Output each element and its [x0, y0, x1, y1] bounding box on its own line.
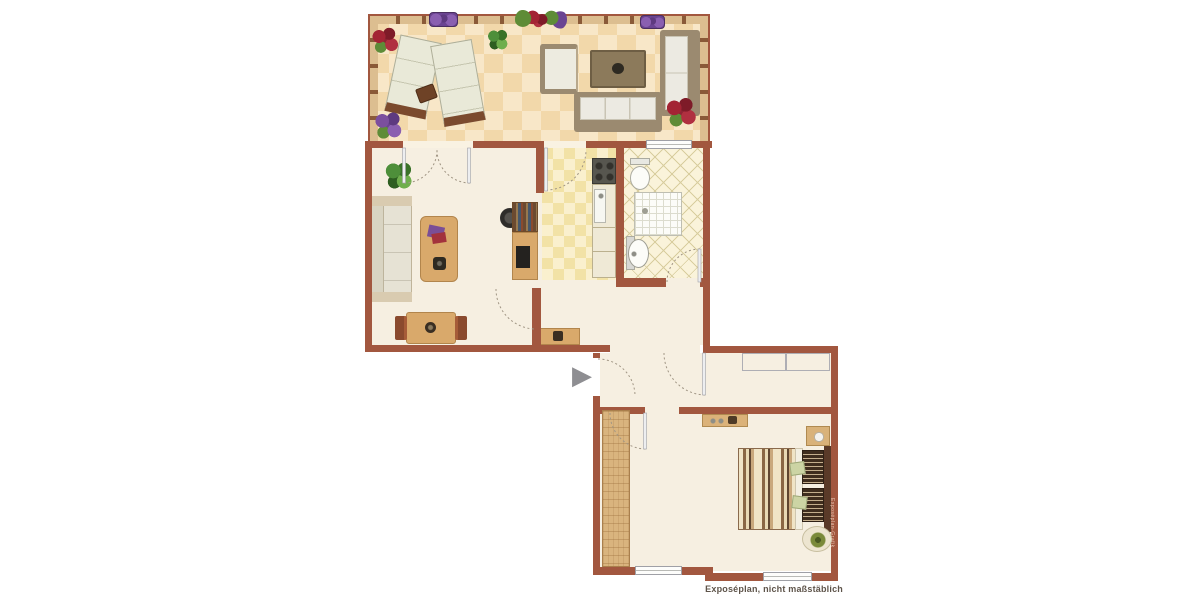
wall	[365, 141, 372, 352]
balcony-door-opening-living	[403, 141, 473, 148]
plant-living-room	[383, 160, 415, 192]
bathroom-door-opening	[666, 278, 700, 287]
entrance-door-opening	[593, 358, 600, 396]
wall	[703, 141, 710, 353]
terrace-table-bowl	[612, 63, 624, 74]
planter-rail-left	[429, 12, 458, 27]
wall	[536, 148, 544, 193]
window-bathroom	[646, 140, 692, 149]
table-bowl	[433, 257, 446, 270]
bedroom-wardrobe	[602, 410, 630, 567]
window-bedroom-left	[635, 566, 682, 575]
dining-chair-left	[395, 316, 407, 340]
wall	[532, 288, 541, 352]
watermark-text: Exposéplan-Grafik	[829, 498, 835, 568]
planter-rail-right	[640, 15, 665, 29]
floor-plan: ▶ Exposéplan-Grafik Exposéplan, nicht ma…	[0, 0, 1200, 600]
flowers-terrace-bottom-left	[372, 110, 404, 142]
living-sofa-arm-top	[370, 196, 412, 206]
bedroom-door-opening	[645, 407, 679, 414]
terrace-rail-right	[700, 16, 708, 146]
living-sofa-arm-bottom	[370, 292, 412, 302]
flowers-terrace-right	[664, 96, 698, 130]
bed-cushion-green-top	[789, 461, 806, 476]
bed-cushion-green-bottom	[791, 495, 807, 510]
dining-table-center	[425, 322, 436, 333]
console-decor	[553, 331, 563, 341]
wall	[616, 148, 624, 287]
flowers-rail-center	[515, 9, 567, 30]
toilet-bowl	[630, 166, 650, 190]
washbasin	[628, 239, 649, 268]
bed-duvet	[738, 448, 796, 530]
balcony-door-opening-kitchen	[544, 141, 586, 148]
shower-drain	[642, 208, 648, 214]
dining-chair-right	[455, 316, 467, 340]
wall	[703, 346, 838, 353]
desk-hutch	[512, 202, 538, 232]
terrace-sofa-horizontal-cushion	[580, 97, 656, 120]
wall	[365, 345, 610, 352]
hall-connector-floor	[610, 345, 700, 354]
bedroom-nightstand	[806, 426, 830, 446]
plant-terrace-center	[486, 28, 510, 52]
hall-sideboard	[742, 353, 830, 371]
shower	[634, 192, 682, 236]
shelf-decor	[728, 416, 737, 424]
kitchen-sink	[594, 189, 606, 223]
desk-monitor	[516, 246, 530, 268]
entrance-arrow-icon: ▶	[572, 362, 592, 388]
stove	[592, 158, 616, 184]
flowers-terrace-top-left	[370, 26, 400, 56]
terrace-armchair	[540, 44, 578, 94]
living-sofa-back	[372, 204, 384, 294]
caption: Exposéplan, nicht maßstäblich	[705, 584, 843, 594]
wall	[600, 407, 831, 414]
bed-pillow-top	[802, 450, 824, 484]
window-bedroom-right	[763, 572, 812, 581]
toilet-tank	[630, 158, 650, 165]
bedroom-plant-stool	[802, 526, 832, 552]
bedroom-shelf	[702, 414, 748, 427]
